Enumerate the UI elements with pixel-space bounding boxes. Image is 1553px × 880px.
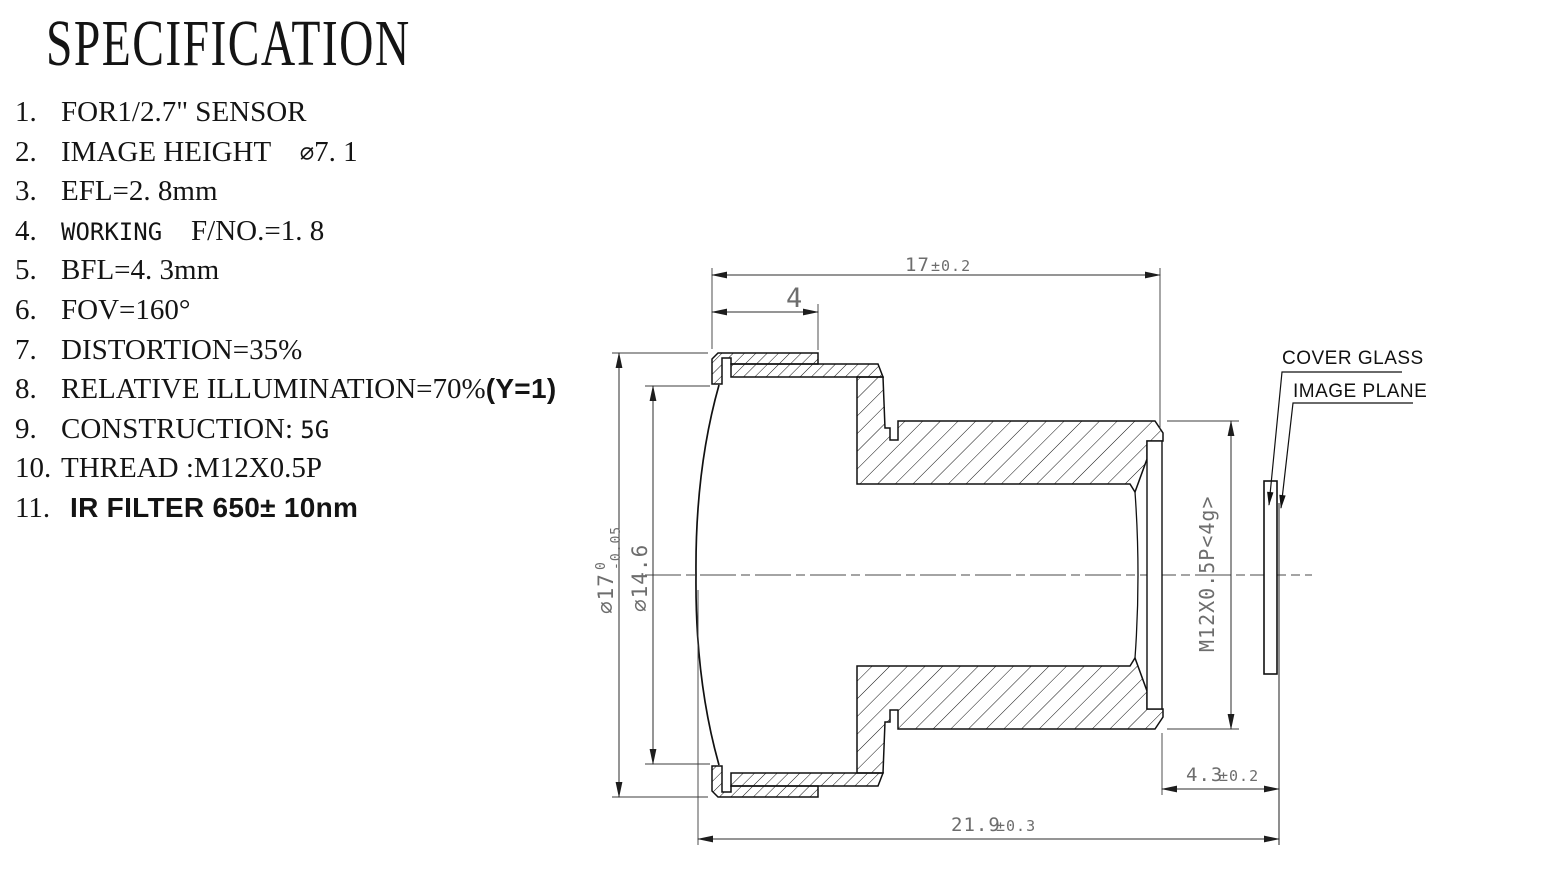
barrel-body-top <box>857 377 1163 492</box>
dim-outer-dia-tol-lower: -0.05 <box>609 526 624 570</box>
dim-outer-dia-value: ∅17 <box>594 573 618 614</box>
callout-image-plane: IMAGE PLANE <box>1281 381 1427 508</box>
cover-glass-label: COVER GLASS <box>1282 348 1424 369</box>
dim-17-value: 17 <box>905 254 930 276</box>
dimension-flange-4: 4 <box>712 283 818 350</box>
dim-4-value: 4 <box>786 283 803 314</box>
cover-glass <box>1264 481 1277 674</box>
dim-43-tolerance: ±0.2 <box>1219 767 1259 785</box>
dim-17-tolerance: ±0.2 <box>931 257 971 275</box>
dim-thread-value: M12X0.5P<4g> <box>1195 496 1219 653</box>
ir-filter <box>1147 441 1162 709</box>
front-sleeve-top <box>731 364 883 377</box>
dim-outer-dia-tol-upper: 0 <box>594 561 609 570</box>
technical-drawing: 17 ±0.2 4 ∅17 0 -0.05 ∅14.6 <box>0 0 1553 880</box>
dim-43-value: 4.3 <box>1186 764 1223 786</box>
image-plane-label: IMAGE PLANE <box>1293 381 1427 402</box>
dimension-back-focal: 4.3 ±0.2 <box>1162 733 1279 795</box>
dim-219-tolerance: ±0.3 <box>996 817 1036 835</box>
callout-cover-glass: COVER GLASS <box>1269 348 1424 505</box>
barrel-body-bottom <box>857 658 1163 773</box>
dim-front-dia-value: ∅14.6 <box>628 544 652 612</box>
dim-219-value: 21.9 <box>951 814 1001 836</box>
rear-lens-surface <box>1135 492 1138 658</box>
dimension-length-17: 17 ±0.2 <box>712 254 1160 429</box>
specification-sheet: SPECIFICATION 1.FOR1/2.7" SENSOR2.IMAGE … <box>0 0 1553 880</box>
front-sleeve-bottom <box>731 773 883 786</box>
